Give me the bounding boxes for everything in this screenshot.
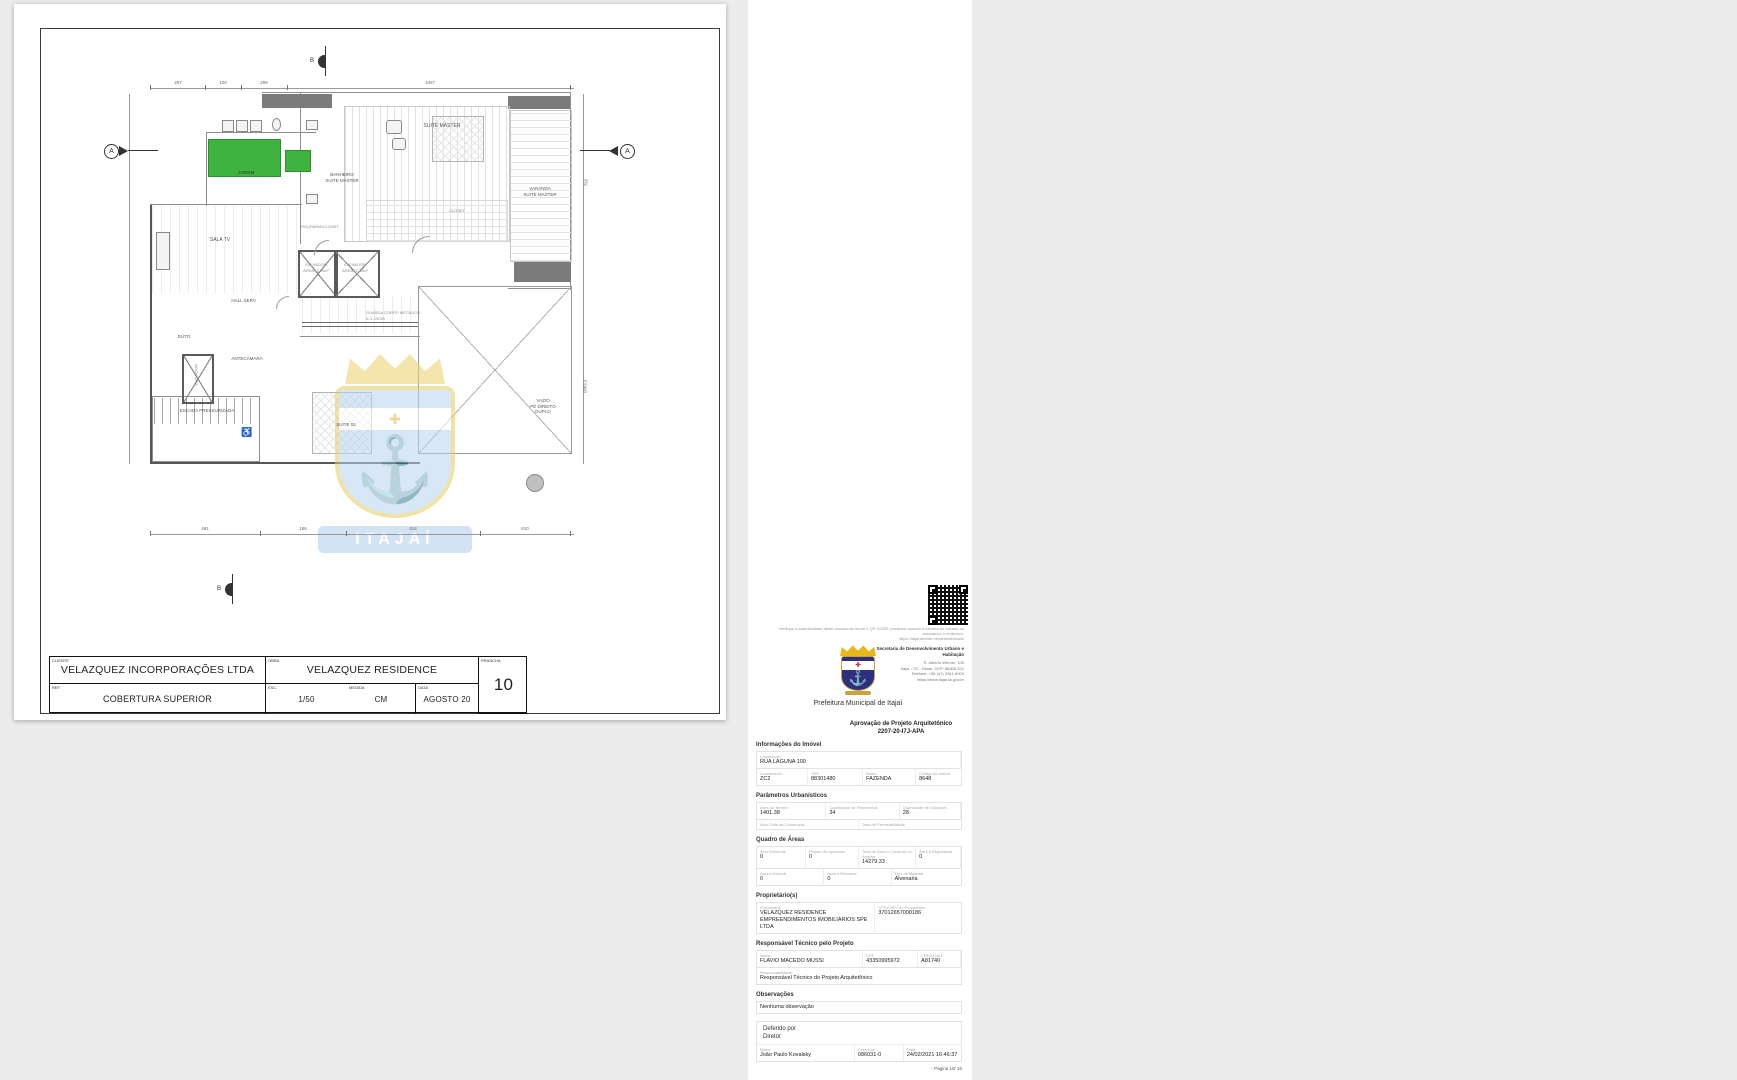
- field-value: 8648: [919, 776, 958, 783]
- field-unidades: Quantidade de Unidades 28: [900, 803, 961, 820]
- field-pavimentos: Quantidade de Pavimentos 34: [826, 803, 899, 820]
- field-value: 0: [809, 854, 855, 861]
- field-value: FLAVIO MACEDO MUSSI: [760, 958, 859, 965]
- field-value: RUA LAGUNA 100: [760, 759, 957, 766]
- section-header-proprietario: Proprietário(s): [756, 893, 962, 899]
- field-value: 34: [829, 810, 895, 817]
- cliente-label: CLIENTE: [52, 658, 69, 663]
- field-responsavel-nome: Nome FLAVIO MACEDO MUSSI: [757, 951, 863, 968]
- quadro-table: Área Existente 0 Projeto de Aprovado 0 T…: [756, 846, 962, 886]
- ref-value: COBERTURA SUPERIOR: [103, 694, 212, 704]
- titleblock-escala-cell: ESC. 1/50: [266, 684, 347, 714]
- titleblock-ref-cell: REF. COBERTURA SUPERIOR: [50, 684, 266, 714]
- approval-stamp-panel: Verifique a autenticidade deste document…: [748, 0, 972, 1080]
- field-label: Total de Área a Construir ou Ampliar: [862, 849, 912, 859]
- qr-finder-icon: [928, 616, 937, 625]
- field-value: 43350995972: [866, 958, 914, 965]
- field-value: FAZENDA: [866, 776, 912, 783]
- deferido-box: Deferido por Diretor Nome João Paulo Kov…: [756, 1021, 962, 1062]
- section-header-parametros: Parâmetros Urbanísticos: [756, 793, 962, 799]
- field-deferido-data: Data 24/02/2021 16:46:37: [904, 1045, 961, 1061]
- field-deferido-nome: Nome João Paulo Kovalsky: [757, 1045, 855, 1061]
- field-responsabilidade: Responsabilidade Responsável Técnico do …: [757, 968, 961, 985]
- field-value: 0: [760, 854, 802, 861]
- secretaria-site: https://www.itajai.sc.gov.br: [856, 677, 964, 683]
- stamp-title: Aprovação de Projeto Arquitetônico: [838, 720, 964, 728]
- title-block: CLIENTE VELAZQUEZ INCORPORAÇÕES LTDA OBR…: [49, 656, 527, 713]
- observacoes-box: Nenhuma observação: [756, 1001, 962, 1014]
- field-value: Responsável Técnico do Projeto Arquitetô…: [760, 975, 958, 982]
- field-area-total: Área Total da Construção: [757, 820, 859, 830]
- titleblock-medida-cell: MEDIDA CM: [347, 684, 416, 714]
- section-header-imovel: Informações do Imóvel: [756, 742, 962, 748]
- field-value: 24/02/2021 16:46:37: [907, 1052, 958, 1059]
- field-value: Alvenaria: [895, 876, 958, 883]
- field-value: 28: [903, 810, 957, 817]
- field-area-reformar: Área a Reformar 0: [824, 869, 891, 886]
- field-value: 14279.33: [862, 859, 912, 866]
- field-label: Taxa de Permeabilidade: [862, 822, 958, 827]
- field-value: ZC2: [760, 776, 804, 783]
- field-codigo-imovel: Código do Imóvel 8648: [916, 769, 961, 786]
- field-value: 1401.38: [760, 810, 822, 817]
- field-tipo-material: Tipo de Material Alvenaria: [892, 869, 961, 886]
- titleblock-obra-cell: OBRA VELAZQUEZ RESIDENCE: [266, 657, 479, 684]
- data-label: DATA: [418, 685, 428, 690]
- field-responsavel-crea: CREA/CAU A81740: [918, 951, 961, 968]
- field-area-terreno: Área do Terreno 1401.38: [757, 803, 826, 820]
- field-label: Área a Regularizar: [919, 849, 957, 854]
- deferido-label: Deferido por: [763, 1025, 955, 1033]
- prancha-value: 10: [494, 675, 513, 695]
- field-bairro: Bairro FAZENDA: [863, 769, 916, 786]
- field-value: 0: [760, 876, 820, 883]
- authenticity-line1: Verifique a autenticidade deste document…: [764, 626, 964, 636]
- field-proprietario-cnpj: CPF/CNPJ do Proprietário 37012657000186: [875, 903, 961, 934]
- parametros-table: Área do Terreno 1401.38 Quantidade de Pa…: [756, 802, 962, 830]
- stamp-protocol: 2207-20-I7J-APA: [838, 728, 964, 736]
- section-header-observacoes: Observações: [756, 992, 962, 998]
- qr-finder-icon: [928, 585, 937, 594]
- stamp-title-block: Aprovação de Projeto Arquitetônico 2207-…: [838, 720, 964, 736]
- field-value: Nenhuma observação: [760, 1004, 958, 1011]
- field-deferido-crea: Crea/Cau 086031-0: [855, 1045, 904, 1061]
- deferido-header: Deferido por Diretor: [757, 1022, 961, 1045]
- field-permeabilidade: Taxa de Permeabilidade: [859, 820, 961, 830]
- field-projeto-aprovado: Projeto de Aprovado 0: [806, 847, 859, 869]
- deferido-row: Nome João Paulo Kovalsky Crea/Cau 086031…: [757, 1045, 961, 1061]
- authenticity-line2: https://itajai.atende.net/autenticidade: [764, 636, 964, 641]
- sheet-border-frame: CLIENTE VELAZQUEZ INCORPORAÇÕES LTDA OBR…: [40, 28, 720, 714]
- field-zoneamento: Zoneamento ZC2: [757, 769, 808, 786]
- secretaria-block: Secretaria de Desenvolvimento Urbano e H…: [856, 646, 964, 682]
- ref-label: REF.: [52, 685, 61, 690]
- field-value: A81740: [921, 958, 957, 965]
- imovel-table: Logradouro RUA LAGUNA 100 Zoneamento ZC2…: [756, 751, 962, 786]
- prefeitura-name: Prefeitura Municipal de Itajaí: [806, 700, 910, 708]
- field-value: 0: [919, 854, 957, 861]
- field-cep: CEP 88301480: [808, 769, 863, 786]
- page-number: - Página 10/ 16: [931, 1066, 962, 1071]
- field-value: João Paulo Kovalsky: [760, 1052, 851, 1059]
- field-area-construir: Total de Área a Construir ou Ampliar 142…: [859, 847, 916, 869]
- field-proprietario-nome: Proprietário VELAZQUEZ RESIDENCE EMPREEN…: [757, 903, 875, 934]
- field-value: 086031-0: [858, 1052, 900, 1059]
- field-area-demolir: Área a Demolir 0: [757, 869, 824, 886]
- stamp-body: Informações do Imóvel Logradouro RUA LAG…: [756, 742, 962, 1062]
- qr-finder-icon: [959, 585, 968, 594]
- page: { "titleblock": { "cliente_label": "CLIE…: [0, 0, 1737, 1080]
- crest-base: [845, 691, 871, 695]
- section-header-quadro: Quadro de Áreas: [756, 837, 962, 843]
- cliente-value: VELAZQUEZ INCORPORAÇÕES LTDA: [61, 664, 254, 676]
- secretaria-name: Secretaria de Desenvolvimento Urbano e H…: [856, 646, 964, 657]
- field-responsavel-cpf: CPF 43350995972: [863, 951, 918, 968]
- titleblock-prancha-cell: PRANCHA 10: [479, 657, 528, 714]
- obra-label: OBRA: [268, 658, 279, 663]
- data-value: AGOSTO 20: [423, 695, 470, 704]
- qr-code-icon: [928, 585, 968, 625]
- medida-value: CM: [375, 695, 388, 704]
- field-logradouro: Logradouro RUA LAGUNA 100: [757, 752, 961, 769]
- responsavel-table: Nome FLAVIO MACEDO MUSSI CPF 43350995972…: [756, 950, 962, 985]
- medida-label: MEDIDA: [349, 685, 365, 690]
- obra-value: VELAZQUEZ RESIDENCE: [307, 664, 437, 676]
- deferido-cargo: Diretor: [763, 1033, 955, 1041]
- section-header-responsavel: Responsável Técnico pelo Projeto: [756, 941, 962, 947]
- field-value: 37012657000186: [878, 910, 958, 917]
- field-area-regularizar: Área a Regularizar 0: [916, 847, 961, 869]
- field-value: VELAZQUEZ RESIDENCE EMPREENDIMENTOS IMOB…: [760, 910, 871, 931]
- proprietario-table: Proprietário VELAZQUEZ RESIDENCE EMPREEN…: [756, 902, 962, 934]
- prancha-label: PRANCHA: [481, 658, 501, 663]
- field-label: Área Total da Construção: [760, 822, 855, 827]
- titleblock-data-cell: DATA AGOSTO 20: [416, 684, 479, 714]
- field-value: 88301480: [811, 776, 859, 783]
- titleblock-cliente-cell: CLIENTE VELAZQUEZ INCORPORAÇÕES LTDA: [50, 657, 266, 684]
- escala-value: 1/50: [298, 695, 314, 704]
- escala-label: ESC.: [268, 685, 277, 690]
- field-area-existente: Área Existente 0: [757, 847, 806, 869]
- authenticity-note: Verifique a autenticidade deste document…: [764, 626, 964, 641]
- drawing-sheet: ✚ ⚓ ITAJAÍ SUITE MASTER VARANDA SUITE MA…: [14, 4, 726, 720]
- field-observacoes: Nenhuma observação: [757, 1002, 961, 1014]
- field-value: 0: [827, 876, 887, 883]
